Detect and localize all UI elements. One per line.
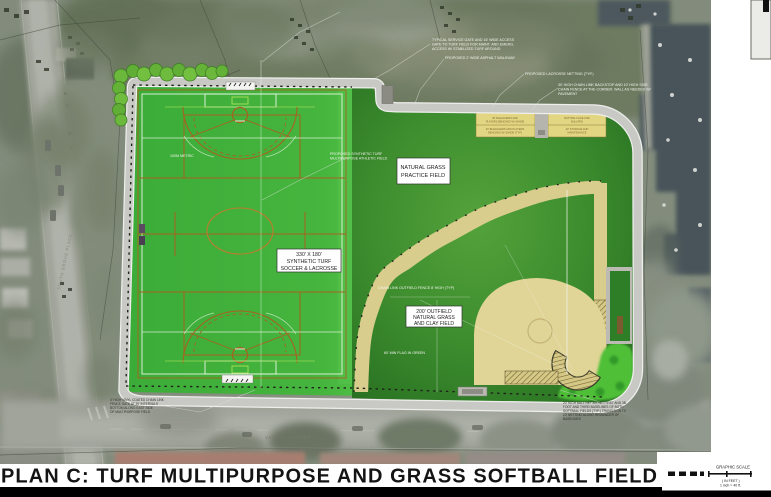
svg-text:PROPOSED LACROSSE NETTING (TYP: PROPOSED LACROSSE NETTING (TYP.) [525, 72, 594, 76]
svg-text:PROPOSED 2' WIDE ASPHALT WALKW: PROPOSED 2' WIDE ASPHALT WALKWAY [445, 56, 516, 60]
svg-text:40' STORAGE AND: 40' STORAGE AND [566, 127, 589, 131]
svg-text:TYPICAL SERVICE GATE AND 16' W: TYPICAL SERVICE GATE AND 16' WIDE ACCESS [432, 38, 515, 42]
svg-text:330' X 180': 330' X 180' [296, 252, 322, 258]
svg-text:OF MULTIPURPOSE FIELD: OF MULTIPURPOSE FIELD [110, 410, 151, 414]
svg-text:CHAIN LINK OUTFIELD FENCE 8' H: CHAIN LINK OUTFIELD FENCE 8' HIGH (TYP) [378, 286, 454, 290]
svg-text:60' MIN FLAG IN GREEN: 60' MIN FLAG IN GREEN [384, 351, 425, 355]
svg-text:SOCCER & LACROSSE: SOCCER & LACROSSE [281, 266, 338, 272]
svg-text:1 inch = 40 ft.: 1 inch = 40 ft. [720, 484, 741, 488]
svg-text:30' HIGH CHAIN LINK BACKSTOP A: 30' HIGH CHAIN LINK BACKSTOP AND 10' HIG… [558, 83, 648, 87]
svg-text:PRACTICE FIELD: PRACTICE FIELD [401, 173, 445, 179]
svg-text:40' BLEACHERS AND PLAYERS: 40' BLEACHERS AND PLAYERS [486, 127, 525, 131]
svg-text:PLAYERS BENCHES W/ SHADE: PLAYERS BENCHES W/ SHADE [486, 120, 525, 124]
svg-text:VALLEY STREET: VALLEY STREET [265, 435, 311, 440]
svg-text:BULLPEN: BULLPEN [571, 120, 583, 124]
svg-text:BATTING CAGE AND: BATTING CAGE AND [564, 116, 589, 120]
svg-text:PROPOSED SYNTHETIC TURF: PROPOSED SYNTHETIC TURF [330, 152, 383, 156]
svg-text:GATE TO TURF FIELD FOR MAINT.: GATE TO TURF FIELD FOR MAINT. AND EMERG. [432, 43, 514, 47]
svg-text:MAINTENANCE: MAINTENANCE [568, 131, 587, 135]
svg-text:100M METRIC: 100M METRIC [170, 154, 194, 158]
svg-text:PLAN C: TURF MULTIPURPOSE AND: PLAN C: TURF MULTIPURPOSE AND GRASS SOFT… [1, 466, 657, 488]
svg-text:SYNTHETIC TURF: SYNTHETIC TURF [287, 259, 332, 265]
svg-text:BENCHES W/ SHADE (TYP): BENCHES W/ SHADE (TYP) [488, 131, 522, 135]
svg-text:( IN FEET ): ( IN FEET ) [722, 479, 740, 483]
svg-text:GRAPHIC SCALE: GRAPHIC SCALE [716, 465, 750, 470]
svg-text:40' BLEACHERS AND: 40' BLEACHERS AND [492, 116, 518, 120]
svg-text:ACCESS W/ STABILIZED TURF AROU: ACCESS W/ STABILIZED TURF AROUND [432, 47, 501, 51]
svg-text:CHAIN FENCE AT THE CORNER. WAL: CHAIN FENCE AT THE CORNER. WALL AS NEEDE… [558, 88, 651, 92]
svg-text:NATURAL GRASS: NATURAL GRASS [401, 165, 446, 171]
svg-text:AND CLAY FIELD: AND CLAY FIELD [414, 321, 454, 327]
svg-text:BASELINES: BASELINES [563, 417, 581, 421]
svg-text:MULTIPURPOSE ATHLETIC FIELD: MULTIPURPOSE ATHLETIC FIELD [330, 157, 388, 161]
svg-text:PAVEMENT: PAVEMENT [558, 92, 578, 96]
